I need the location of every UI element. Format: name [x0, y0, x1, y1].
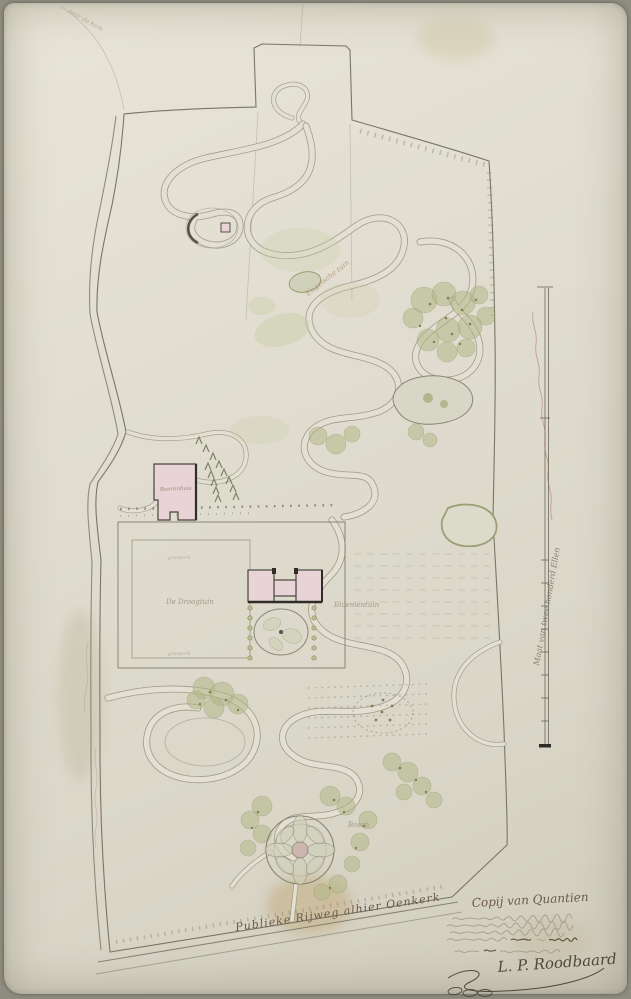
title-heading: Copij van Quantien — [471, 890, 588, 910]
garden-plan-sheet: naar de kerk Engelsche tuin Boerenhuis g… — [0, 0, 631, 999]
plan-drawing: naar de kerk Engelsche tuin Boerenhuis g… — [0, 0, 631, 999]
road-label: Publieke Rijweg alhier Oenkerk — [234, 891, 442, 935]
scale-bar-end — [539, 744, 551, 748]
field-rows-right — [354, 554, 490, 638]
large-pond — [393, 376, 473, 424]
rosette-center — [292, 842, 308, 858]
cluster-lower-right — [383, 753, 442, 808]
scale-label: Maat van twee honderd Ellen — [532, 547, 562, 668]
left-road-line — [88, 116, 118, 950]
rosette-feature — [265, 815, 335, 885]
green-washes — [230, 228, 380, 444]
chimney — [294, 568, 298, 574]
faded-red-inscription — [95, 748, 97, 848]
grass-plot-top-label: grasperk — [168, 555, 191, 561]
field-oval — [165, 718, 245, 766]
chimney — [272, 568, 276, 574]
conifer-row — [196, 437, 239, 502]
labels: naar de kerk Engelsche tuin Boerenhuis g… — [67, 8, 617, 976]
signature: L. P. Roodbaard — [496, 950, 617, 976]
olive-pond — [442, 504, 497, 546]
grass-plot-bottom-label: grasperk — [168, 651, 191, 657]
drying-garden-label: De Droogtuin — [165, 598, 214, 606]
pond-island — [423, 393, 433, 403]
faded-red-scale-note — [533, 312, 552, 520]
hedge-ticks — [360, 131, 486, 165]
scale-bar — [533, 287, 553, 748]
bottom-road-line — [98, 902, 458, 962]
cluster-mid — [309, 424, 437, 454]
farmhouse-label: Boerenhuis — [159, 486, 192, 493]
garden-pavilion — [221, 223, 230, 232]
wood-label: Bosch — [347, 821, 369, 829]
church-path-label: naar de kerk — [67, 8, 104, 34]
main-house — [248, 568, 322, 602]
buildings — [154, 464, 322, 602]
flower-garden-label: Bloementuin — [333, 601, 380, 609]
flourish-loop — [448, 987, 463, 996]
pond-island — [440, 400, 448, 408]
cluster-lower-left — [187, 677, 248, 718]
flourish-loop — [478, 990, 492, 997]
parterre — [254, 609, 308, 655]
